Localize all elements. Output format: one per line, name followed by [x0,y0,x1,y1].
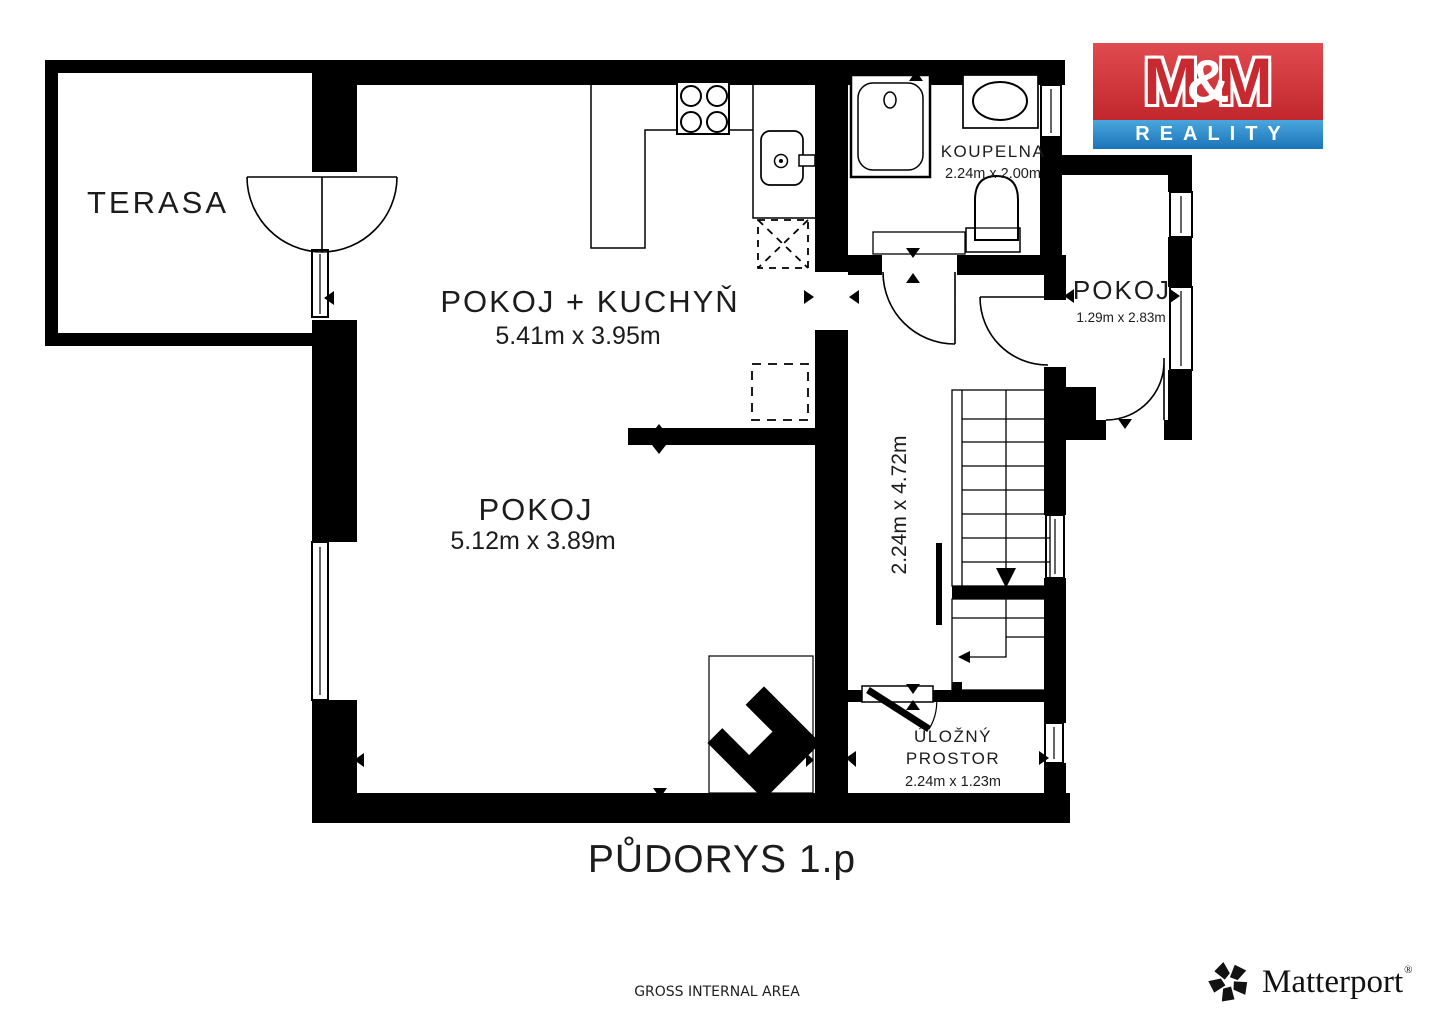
storage-door [862,686,937,729]
mm-logo-mark: M & M [1093,43,1323,120]
label-ulozny-line1: ÚLOŽNÝ [914,727,992,746]
bathtub-icon [851,75,930,177]
fireplace-icon [702,656,821,800]
staircase [952,390,1050,690]
window-bathroom [1041,85,1061,137]
label-koupelna: KOUPELNA [941,142,1046,161]
matterport-wordmark: Matterport [1262,964,1403,1001]
window-storage [1045,723,1063,763]
window-left-wall [312,542,328,700]
matterport-logo: Matterport ® [1206,956,1412,1008]
terasa-double-door [247,177,397,252]
appliance-dashed-box [758,220,808,268]
label-pokoj-right: POKOJ [1073,275,1171,305]
floor-plan-page: TERASA POKOJ + KUCHYŇ 5.41m x 3.95m KOUP… [0,0,1440,1018]
bathroom-fixtures [851,75,1038,254]
dims-ulozny: 2.24m x 1.23m [905,774,1001,790]
dims-koupelna: 2.24m x 2.00m [945,166,1041,182]
mm-reality-logo: M & M REALITY [1093,43,1323,149]
toilet-icon [966,176,1020,252]
window-stairs [1046,515,1064,578]
plan-title: PŮDORYS 1.p [588,836,856,881]
bathroom-sink-icon [963,75,1038,128]
area-summary: GROSS INTERNAL AREA FLOOR 1 58.5 m² FLOO… [360,946,1074,1018]
mm-logo-subtitle: REALITY [1093,120,1323,149]
label-pokoj-kuchyn: POKOJ + KUCHYŇ [440,284,739,319]
dims-chodba: 2.24m x 4.72m [888,436,911,575]
dashed-reserved-box [752,364,808,420]
window-terasa-wall [312,250,328,317]
matterport-pinwheel-icon [1206,959,1252,1005]
dims-pokoj-kuchyn: 5.41m x 3.95m [495,322,660,350]
dims-pokoj-right: 1.29m x 2.83m [1076,310,1165,325]
hall-door [980,297,1048,365]
floor-plan-svg: TERASA POKOJ + KUCHYŇ 5.41m x 3.95m KOUP… [0,0,1440,1018]
area-summary-title: GROSS INTERNAL AREA [360,984,1074,1000]
kitchen-fixtures [591,82,815,420]
kitchen-sink-icon [761,131,815,185]
mm-logo-ampersand: & [1186,43,1229,120]
label-ulozny-line2: PROSTOR [906,749,1000,768]
right-room-door [1106,358,1164,420]
label-pokoj-big: POKOJ [478,492,593,527]
label-terasa: TERASA [87,185,229,220]
bathroom-step [873,232,965,254]
window-right-room-top [1170,192,1192,237]
stove-icon [677,82,729,134]
matterport-registered-mark: ® [1404,964,1412,976]
dims-pokoj-big: 5.12m x 3.89m [450,527,615,555]
